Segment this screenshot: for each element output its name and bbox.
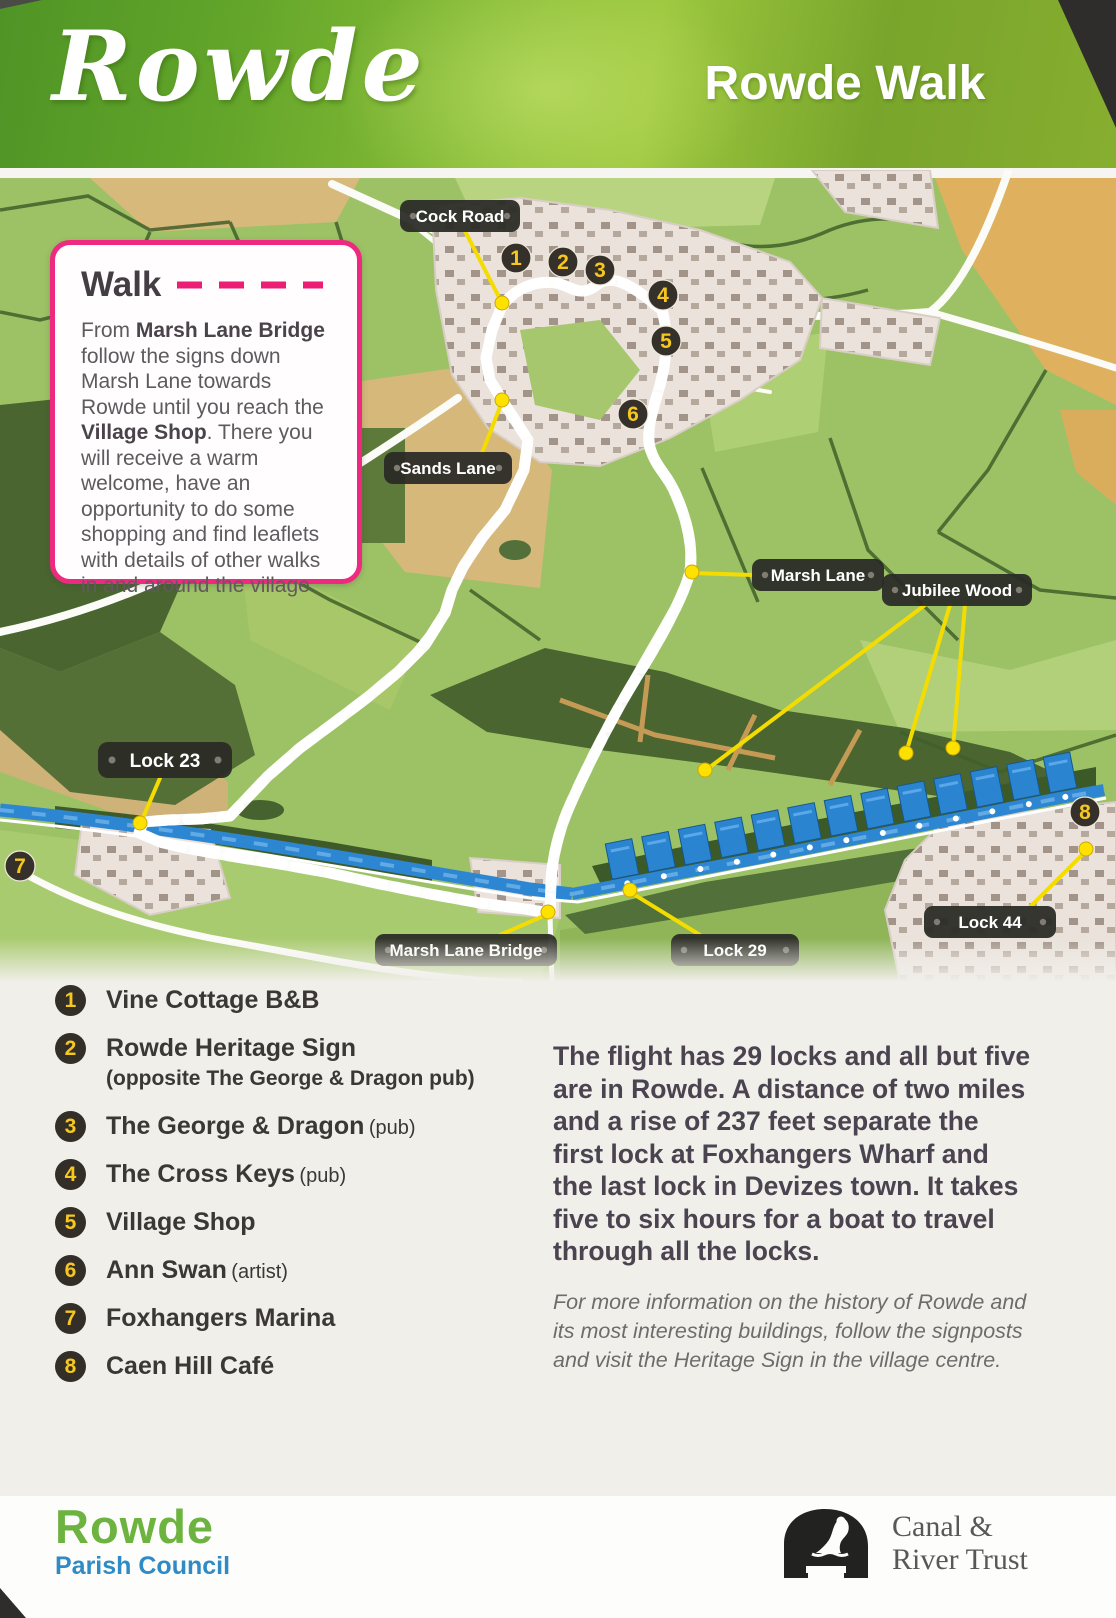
walk-bold-marsh-lane-bridge: Marsh Lane Bridge bbox=[136, 319, 325, 342]
map-bottom-fade bbox=[0, 938, 1116, 982]
route-dash-sample bbox=[175, 279, 325, 291]
svg-text:8: 8 bbox=[1079, 801, 1091, 824]
legend-item-4: 4 The Cross Keys (pub) bbox=[55, 1159, 525, 1190]
legend-name-8: Caen Hill Café bbox=[106, 1352, 274, 1380]
legend-num-5: 5 bbox=[55, 1207, 86, 1238]
council-name: Rowde bbox=[55, 1502, 230, 1552]
svg-text:Sands Lane: Sands Lane bbox=[400, 459, 495, 478]
walk-text-2: follow the signs down Marsh Lane towards… bbox=[81, 345, 324, 419]
label-cock-road: Cock Road bbox=[400, 200, 520, 232]
marker-6: 6 bbox=[618, 399, 648, 429]
legend-num-7: 7 bbox=[55, 1303, 86, 1334]
legend-num-2: 2 bbox=[55, 1033, 86, 1064]
parish-council-logo: Rowde Parish Council bbox=[55, 1502, 230, 1581]
legend-item-8: 8 Caen Hill Café bbox=[55, 1351, 525, 1382]
legend-name-7: Foxhangers Marina bbox=[106, 1304, 335, 1332]
walk-info-box: Walk From Marsh Lane Bridge follow the s… bbox=[50, 240, 362, 584]
trust-line-1: Canal & bbox=[892, 1510, 1028, 1543]
svg-text:Lock 23: Lock 23 bbox=[130, 751, 201, 772]
legend-suffix-6: (artist) bbox=[231, 1261, 288, 1283]
label-sands-lane: Sands Lane bbox=[384, 452, 512, 484]
legend-item-3: 3 The George & Dragon (pub) bbox=[55, 1111, 525, 1142]
legend-item-1: 1 Vine Cottage B&B bbox=[55, 985, 525, 1016]
svg-text:Lock 44: Lock 44 bbox=[958, 913, 1022, 932]
legend-note-2: (opposite The George & Dragon pub) bbox=[106, 1064, 475, 1094]
legend-name-2: Rowde Heritage Sign bbox=[106, 1034, 356, 1062]
legend-suffix-3: (pub) bbox=[369, 1117, 416, 1139]
svg-text:3: 3 bbox=[594, 259, 606, 282]
marker-8: 8 bbox=[1070, 797, 1100, 827]
svg-text:Cock Road: Cock Road bbox=[416, 207, 505, 226]
walk-bold-village-shop: Village Shop bbox=[81, 421, 207, 444]
history-note: For more information on the history of R… bbox=[553, 1288, 1031, 1375]
svg-text:6: 6 bbox=[627, 403, 639, 426]
page-title: Rowde Walk bbox=[640, 56, 1050, 111]
legend-name-6: Ann Swan bbox=[106, 1256, 227, 1284]
label-lock-44: Lock 44 bbox=[924, 906, 1056, 938]
legend-item-5: 5 Village Shop bbox=[55, 1207, 525, 1238]
walk-box-text: From Marsh Lane Bridge follow the signs … bbox=[81, 318, 333, 599]
trust-wordmark: Canal & River Trust bbox=[892, 1510, 1028, 1576]
legend-name-1: Vine Cottage B&B bbox=[106, 986, 319, 1014]
legend-name-4: The Cross Keys bbox=[106, 1160, 295, 1188]
svg-text:2: 2 bbox=[557, 251, 569, 274]
canal-river-trust-logo: Canal & River Trust bbox=[778, 1504, 1028, 1582]
marker-4: 4 bbox=[648, 280, 678, 310]
legend-item-7: 7 Foxhangers Marina bbox=[55, 1303, 525, 1334]
label-lock-23: Lock 23 bbox=[98, 742, 232, 778]
legend-item-2: 2 Rowde Heritage Sign (opposite The Geor… bbox=[55, 1033, 525, 1094]
svg-text:4: 4 bbox=[657, 284, 669, 307]
marker-3: 3 bbox=[585, 255, 615, 285]
svg-text:5: 5 bbox=[660, 330, 672, 353]
legend-num-3: 3 bbox=[55, 1111, 86, 1142]
footer-band: Rowde Parish Council Canal & River Trust bbox=[0, 1496, 1116, 1618]
walk-text-3: . There you will receive a warm welcome,… bbox=[81, 421, 320, 597]
info-column: The flight has 29 locks and all but five… bbox=[553, 1040, 1031, 1375]
marker-7: 7 bbox=[5, 851, 35, 881]
trust-line-2: River Trust bbox=[892, 1543, 1028, 1576]
svg-text:1: 1 bbox=[510, 247, 522, 270]
legend-num-8: 8 bbox=[55, 1351, 86, 1382]
svg-text:Marsh Lane: Marsh Lane bbox=[771, 566, 865, 585]
legend-num-4: 4 bbox=[55, 1159, 86, 1190]
walk-box-title: Walk bbox=[81, 265, 161, 305]
legend-num-6: 6 bbox=[55, 1255, 86, 1286]
legend-name-5: Village Shop bbox=[106, 1208, 256, 1236]
marker-2: 2 bbox=[548, 247, 578, 277]
rowde-script-logo: Rowde bbox=[52, 10, 427, 123]
locks-paragraph: The flight has 29 locks and all but five… bbox=[553, 1040, 1031, 1268]
label-marsh-lane: Marsh Lane bbox=[752, 559, 884, 591]
council-subtitle: Parish Council bbox=[55, 1552, 230, 1581]
leaflet-page: Rowde Rowde Walk bbox=[0, 0, 1116, 1618]
legend-num-1: 1 bbox=[55, 985, 86, 1016]
legend-list: 1 Vine Cottage B&B 2 Rowde Heritage Sign… bbox=[55, 985, 525, 1399]
label-jubilee-wood: Jubilee Wood bbox=[882, 574, 1032, 606]
svg-text:7: 7 bbox=[14, 855, 26, 878]
legend-suffix-4: (pub) bbox=[299, 1165, 346, 1187]
svg-text:Jubilee Wood: Jubilee Wood bbox=[902, 581, 1012, 600]
walk-text-1: From bbox=[81, 319, 136, 342]
marker-5: 5 bbox=[651, 326, 681, 356]
swan-bridge-icon bbox=[778, 1504, 874, 1582]
header-banner: Rowde Rowde Walk bbox=[0, 0, 1116, 170]
marker-1: 1 bbox=[501, 243, 531, 273]
legend-name-3: The George & Dragon bbox=[106, 1112, 364, 1140]
legend-item-6: 6 Ann Swan (artist) bbox=[55, 1255, 525, 1286]
